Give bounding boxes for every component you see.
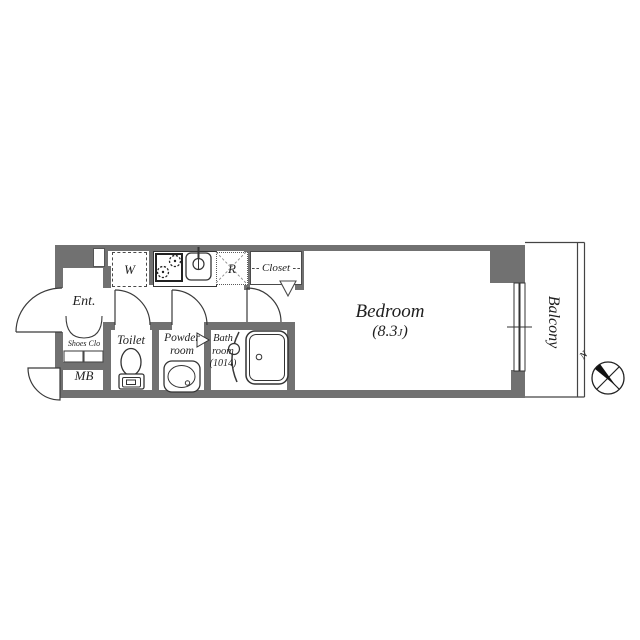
powder-room-label: Powder room (157, 332, 207, 357)
bedroom-area-value: (8.3 (372, 323, 397, 340)
bedroom-area: (8.3J) (320, 323, 460, 341)
powder-room-label-line1: Powder (157, 332, 207, 345)
balcony-window-icon (507, 283, 532, 371)
meter-box-door-icon (28, 368, 60, 400)
kitchen-sink-icon (186, 247, 211, 280)
bathtub-icon (246, 331, 288, 384)
meter-box-label: MB (64, 369, 104, 383)
entry-door-icon (16, 288, 62, 332)
floor-plan: W R Closet (0, 0, 640, 640)
toilet-label: Toilet (106, 334, 156, 348)
powder-room-label-line2: room (157, 345, 207, 358)
bedroom-label: Bedroom (8.3J) (320, 302, 460, 340)
powder-door-icon (172, 290, 207, 325)
toilet-icon (119, 349, 144, 390)
powder-sink-icon (164, 361, 200, 392)
stove-icon (156, 254, 182, 281)
closet-bifold-icon (280, 281, 296, 296)
north-indicator-icon (592, 362, 624, 394)
entrance-label: Ent. (63, 294, 105, 309)
bath-room-label-line3: (1014) (204, 358, 242, 370)
bedroom-name: Bedroom (320, 302, 460, 323)
bedroom-door-icon (247, 288, 281, 322)
shoes-closet-label: Shoes Clo (61, 340, 107, 349)
balcony-label: Balcony (542, 277, 562, 367)
refrigerator-cross-icon (216, 252, 246, 283)
bath-room-label-line1: Bath (204, 333, 242, 346)
toilet-door-icon (115, 290, 150, 325)
bath-room-label-line2: room (204, 346, 242, 359)
bath-room-label: Bath room (1014) (204, 333, 242, 370)
bedroom-area-close: ) (402, 323, 407, 340)
